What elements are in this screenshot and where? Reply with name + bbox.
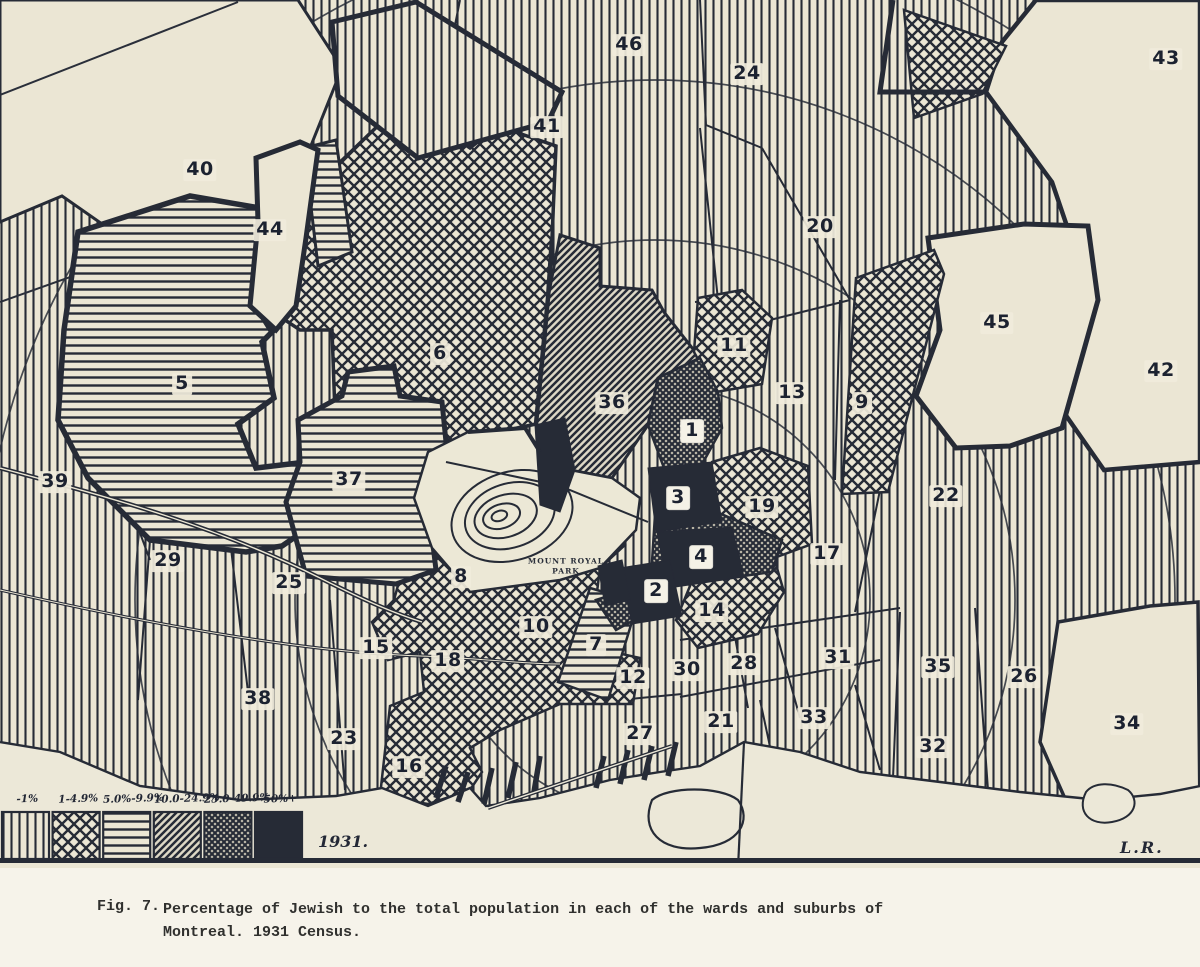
legend-label-horizontal-lines: 5.0%-9.9% bbox=[103, 792, 154, 806]
ward-label-7: 7 bbox=[586, 634, 606, 656]
island-small bbox=[1083, 784, 1135, 822]
legend-swatch-diagonal-lines bbox=[154, 812, 201, 859]
ward-label-46: 46 bbox=[612, 34, 645, 56]
ward-label-42: 42 bbox=[1144, 360, 1177, 382]
park-label: Mount RoyalPark bbox=[528, 556, 604, 576]
ward-label-11: 11 bbox=[717, 335, 750, 357]
ward-label-19: 19 bbox=[745, 496, 778, 518]
legend-label-diamond-crosshatch: 1-4.9% bbox=[52, 792, 103, 806]
ward-label-17: 17 bbox=[810, 543, 843, 565]
legend-swatch-vertical-lines bbox=[2, 812, 49, 859]
ward-label-39: 39 bbox=[38, 471, 71, 493]
legend-swatch-solid bbox=[255, 812, 302, 859]
cartographer-initials: L.R. bbox=[1120, 838, 1164, 857]
ward-label-6: 6 bbox=[430, 343, 450, 365]
ward-label-16: 16 bbox=[392, 756, 425, 778]
legend-labels: -1%1-4.9%5.0%-9.9%10.0-24.9%25.0-49.9%50… bbox=[2, 793, 305, 805]
legend-swatch-diamond-crosshatch bbox=[53, 812, 100, 859]
ward-label-28: 28 bbox=[727, 653, 760, 675]
ward-label-1: 1 bbox=[681, 420, 703, 442]
ward-label-2: 2 bbox=[645, 580, 667, 602]
ward-label-26: 26 bbox=[1007, 666, 1040, 688]
ward-label-27: 27 bbox=[623, 723, 656, 745]
ward-label-33: 33 bbox=[797, 707, 830, 729]
ward-label-21: 21 bbox=[704, 711, 737, 733]
ward-label-32: 32 bbox=[916, 736, 949, 758]
caption-strip: Fig. 7. Percentage of Jewish to the tota… bbox=[0, 868, 1200, 967]
ward-label-18: 18 bbox=[431, 650, 464, 672]
ward-label-10: 10 bbox=[519, 616, 552, 638]
legend-label-vertical-lines: -1% bbox=[2, 792, 53, 806]
caption-line-1: Percentage of Jewish to the total popula… bbox=[163, 901, 883, 918]
ward-label-8: 8 bbox=[451, 566, 471, 588]
ward-label-36: 36 bbox=[595, 392, 628, 414]
legend-label-dense-crosshatch: 25.0-49.9% bbox=[204, 792, 255, 806]
ward-label-23: 23 bbox=[327, 728, 360, 750]
ward-label-29: 29 bbox=[151, 550, 184, 572]
legend-label-solid: 50%+ bbox=[254, 792, 305, 806]
figure-page: 1234567891011121314151617181920212223242… bbox=[0, 0, 1200, 967]
ward-label-25: 25 bbox=[272, 572, 305, 594]
ward-label-20: 20 bbox=[803, 216, 836, 238]
ward-label-22: 22 bbox=[929, 485, 962, 507]
caption-line-2: Montreal. 1931 Census. bbox=[163, 924, 361, 941]
caption-figure-number: Fig. 7. bbox=[97, 898, 163, 944]
montreal-ward-map: 1234567891011121314151617181920212223242… bbox=[0, 0, 1200, 868]
ward-label-41: 41 bbox=[530, 116, 563, 138]
ward-label-13: 13 bbox=[775, 382, 808, 404]
ward-label-5: 5 bbox=[172, 373, 192, 395]
ward-label-34: 34 bbox=[1110, 713, 1143, 735]
ward-label-12: 12 bbox=[616, 667, 649, 689]
island bbox=[649, 790, 744, 849]
legend-swatch-horizontal-lines bbox=[103, 812, 150, 859]
ward-label-14: 14 bbox=[695, 600, 728, 622]
ward-label-45: 45 bbox=[980, 312, 1013, 334]
legend-swatch-dense-crosshatch bbox=[204, 812, 251, 859]
ward-label-30: 30 bbox=[670, 659, 703, 681]
figure-caption: Fig. 7. Percentage of Jewish to the tota… bbox=[97, 898, 883, 944]
ward-label-15: 15 bbox=[359, 637, 392, 659]
ward-label-38: 38 bbox=[241, 688, 274, 710]
legend-label-diagonal-lines: 10.0-24.9% bbox=[153, 792, 204, 806]
ward-label-44: 44 bbox=[253, 219, 286, 241]
ward-label-37: 37 bbox=[332, 469, 365, 491]
bottom-rule bbox=[0, 858, 1200, 863]
legend-year-note: 1931. bbox=[318, 832, 368, 851]
ward-label-3: 3 bbox=[667, 487, 689, 509]
map-drawing bbox=[0, 0, 1200, 868]
ward-label-24: 24 bbox=[730, 63, 763, 85]
ward-label-40: 40 bbox=[183, 159, 216, 181]
ward-label-31: 31 bbox=[821, 647, 854, 669]
caption-text: Percentage of Jewish to the total popula… bbox=[163, 898, 883, 944]
ward-label-4: 4 bbox=[690, 546, 712, 568]
ward-label-43: 43 bbox=[1149, 48, 1182, 70]
ward-label-9: 9 bbox=[852, 392, 872, 414]
ward-label-35: 35 bbox=[921, 656, 954, 678]
